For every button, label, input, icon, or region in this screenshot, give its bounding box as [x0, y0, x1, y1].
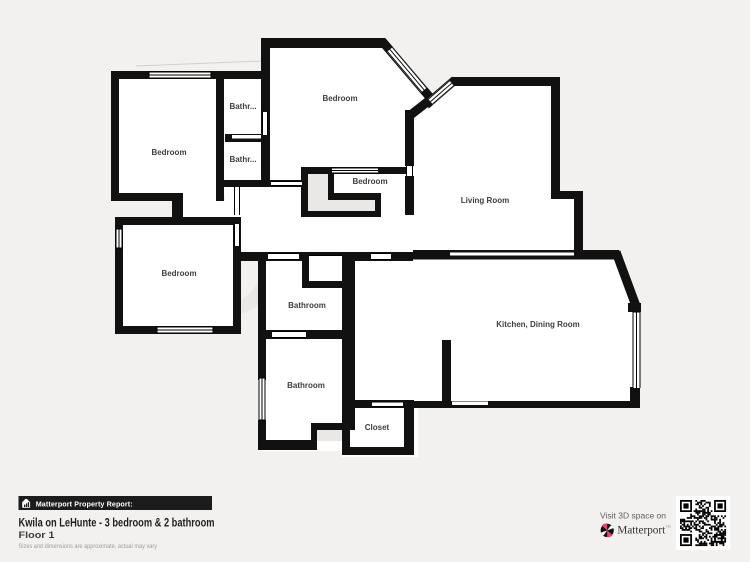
svg-text:Closet: Closet	[365, 423, 390, 432]
svg-text:Bedroom: Bedroom	[151, 148, 186, 157]
svg-text:Sizes and dimensions are appro: Sizes and dimensions are approximate, ac…	[19, 543, 158, 550]
svg-text:Living Room: Living Room	[461, 196, 509, 205]
svg-text:TM: TM	[666, 525, 671, 529]
svg-text:Visit 3D space on: Visit 3D space on	[600, 510, 666, 520]
svg-text:Bedroom: Bedroom	[322, 94, 357, 103]
svg-text:Bedroom: Bedroom	[161, 269, 196, 278]
svg-text:Bedroom: Bedroom	[352, 177, 387, 186]
svg-text:Kwila on LeHunte - 3 bedroom &: Kwila on LeHunte - 3 bedroom & 2 bathroo…	[19, 516, 215, 530]
svg-text:Bathroom: Bathroom	[288, 301, 326, 310]
svg-text:Kitchen, Dining Room: Kitchen, Dining Room	[496, 320, 580, 329]
svg-text:Bathroom: Bathroom	[287, 381, 325, 390]
svg-text:Bathr...: Bathr...	[229, 102, 256, 111]
svg-text:Matterport: Matterport	[617, 525, 666, 537]
svg-text:Matterport Property Report:: Matterport Property Report:	[36, 499, 133, 508]
svg-text:Bathr...: Bathr...	[229, 155, 256, 164]
svg-text:Floor 1: Floor 1	[19, 530, 56, 541]
